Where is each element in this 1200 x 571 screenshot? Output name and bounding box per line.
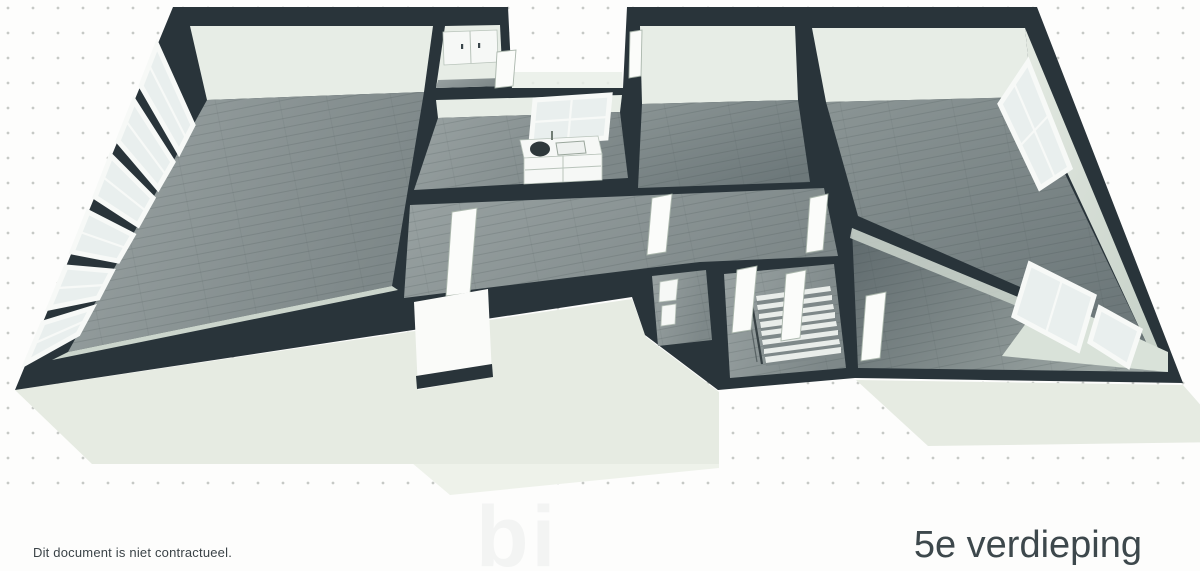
facade-notch — [510, 72, 623, 88]
bathroom-fixture — [661, 304, 676, 326]
floor-plan-3d — [0, 0, 1200, 571]
bathroom-fixture — [659, 279, 678, 302]
sink — [556, 141, 586, 155]
floor-plan-screenshot: bi Dit document is niet contractueel. 5e… — [0, 0, 1200, 571]
kitchen-door-leaf — [495, 50, 516, 88]
notch-side-door-leaf — [629, 30, 642, 78]
entrance-doorway — [414, 289, 493, 390]
storage-room — [436, 25, 503, 88]
stair-hall — [724, 264, 846, 378]
bathroom — [652, 270, 712, 346]
watermark-logo: bi — [476, 488, 558, 571]
wall-cabinet — [443, 30, 498, 65]
cooktop — [530, 142, 550, 157]
floor-label: 5e verdieping — [914, 524, 1142, 567]
disclaimer-text: Dit document is niet contractueel. — [33, 545, 232, 560]
